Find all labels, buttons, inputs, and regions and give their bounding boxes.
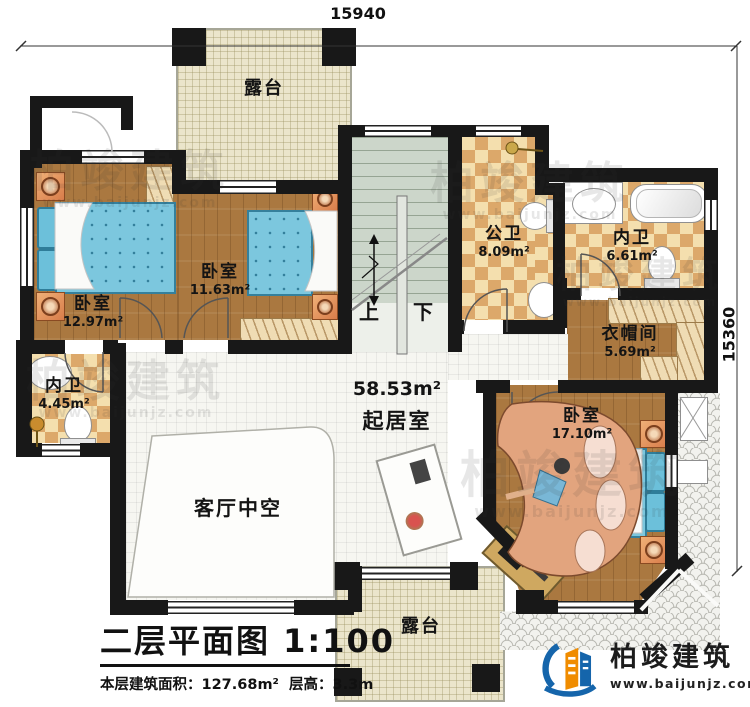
wall: [704, 168, 718, 200]
floor-plan-canvas: 15940 15360 露台 卧室12.97m² 卧室11.63m² 公卫8.0…: [0, 0, 750, 707]
wall: [448, 320, 464, 334]
wall: [503, 320, 565, 334]
plan-title: 二层平面图 1:100: [100, 616, 395, 662]
room-label-bedroom-right: 卧室17.10m²: [552, 406, 612, 443]
roof-x-box: [680, 397, 708, 441]
terrace-pillar: [172, 28, 206, 66]
room-label-bath-master: 内卫6.61m²: [606, 228, 657, 265]
wall: [30, 150, 82, 164]
wall: [16, 345, 32, 457]
wall: [535, 125, 549, 183]
roof-chimney-box: [676, 460, 708, 484]
window: [82, 150, 144, 164]
stairs-up-label: 上: [359, 300, 381, 324]
table-flower: [403, 510, 425, 532]
wall: [618, 288, 718, 300]
desk-items: [530, 564, 549, 582]
window: [42, 444, 80, 457]
stairs-down-label: 下: [413, 300, 435, 324]
wall: [665, 393, 678, 455]
room-label-bedroom-left: 卧室12.97m²: [63, 294, 123, 331]
brand-logo: 柏竣建筑 www.baijunjz.com: [538, 636, 750, 698]
room-label-living: 58.53m²起居室: [353, 378, 441, 435]
nightstand: [312, 294, 338, 320]
wall: [704, 230, 718, 393]
nightstand: [36, 172, 65, 201]
wall: [16, 443, 42, 457]
brand-url: www.baijunjz.com: [610, 676, 750, 691]
wall: [228, 340, 352, 354]
wall: [553, 288, 581, 300]
wall: [549, 168, 718, 182]
room-label-void: 客厅中空: [194, 496, 282, 520]
wall: [110, 457, 126, 615]
wall-pillar: [516, 590, 544, 614]
corridor-floor: [448, 334, 568, 380]
window: [558, 601, 634, 614]
bed-right-pillow: [645, 492, 666, 532]
bathtub-inner: [636, 189, 702, 218]
room-label-cloakroom: 衣帽间5.69m²: [602, 324, 659, 361]
window: [476, 125, 521, 137]
wall: [558, 380, 718, 393]
dimension-right: 15360: [720, 302, 739, 368]
terrace-pillar: [332, 562, 360, 590]
wall: [544, 600, 558, 614]
wall: [172, 180, 220, 194]
brand-name: 柏竣建筑: [610, 644, 750, 671]
wardrobe-bedroom-mid: [240, 318, 340, 342]
table-tray: [409, 459, 430, 485]
wall: [30, 96, 133, 108]
wall: [165, 340, 183, 354]
nightstand: [36, 292, 65, 321]
wall: [110, 343, 126, 457]
bed-left-pillow: [37, 207, 57, 249]
bed-left-pillow: [37, 249, 57, 291]
plan-scale: 1:100: [283, 622, 395, 660]
sink: [572, 188, 616, 220]
room-label-terrace-top: 露台: [244, 78, 284, 100]
window: [20, 208, 34, 286]
cloakroom-wardrobe-right: [676, 322, 706, 382]
wall: [294, 600, 354, 615]
bed-right-mattress: [545, 448, 647, 538]
wall: [476, 380, 510, 393]
nightstand: [640, 420, 668, 448]
window: [365, 125, 431, 137]
room-label-bath-left: 内卫4.45m²: [38, 376, 89, 413]
room-label-terrace-bottom: 露台: [401, 616, 441, 638]
room-label-bedroom-mid: 卧室11.63m²: [190, 262, 250, 299]
bed-mid-mattress: [247, 210, 313, 296]
window: [704, 200, 718, 230]
wall: [20, 286, 34, 345]
window: [168, 601, 294, 614]
title-block: 二层平面图 1:100 本层建筑面积：127.68m² 层高：3.3m: [100, 616, 395, 694]
wall: [431, 125, 476, 137]
title-underline: [100, 664, 350, 667]
nightstand: [640, 536, 668, 564]
window: [362, 567, 450, 580]
window: [665, 455, 678, 487]
stairs-floor: [352, 137, 448, 303]
cloakroom-wardrobe-top: [608, 298, 706, 324]
bed-left-mattress: [55, 202, 176, 294]
terrace-pillar: [472, 664, 500, 692]
wall: [665, 487, 678, 569]
bed-mid-pillow: [318, 216, 337, 252]
brand-logo-icon: [538, 636, 602, 698]
wall: [553, 183, 565, 278]
wall: [483, 393, 496, 522]
plan-stats: 本层建筑面积：127.68m² 层高：3.3m: [100, 673, 395, 694]
room-label-bath-public: 公卫8.09m²: [478, 224, 529, 261]
wall: [338, 125, 352, 354]
terrace-pillar: [450, 562, 478, 590]
bed-right-pillow: [645, 452, 666, 492]
bed-mid-pillow: [318, 254, 337, 290]
wall: [345, 125, 365, 137]
wall: [121, 96, 133, 130]
window: [220, 180, 276, 194]
wall: [110, 600, 168, 615]
terrace-pillar: [322, 28, 356, 66]
dimension-top: 15940: [327, 4, 389, 23]
